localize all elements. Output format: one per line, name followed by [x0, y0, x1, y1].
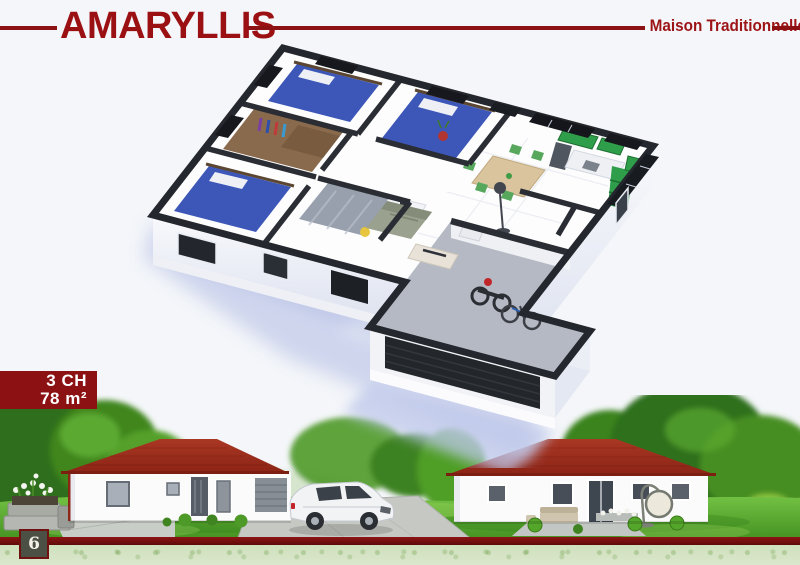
window	[105, 480, 131, 508]
house-base-shadow	[454, 521, 708, 524]
page-number: 6	[28, 534, 40, 554]
header-rule-left	[0, 26, 57, 30]
parked-car	[283, 474, 398, 540]
french-door	[215, 479, 232, 514]
header-rule-right	[772, 26, 800, 30]
header-rule-middle	[248, 26, 645, 30]
car-rear-window	[316, 486, 342, 501]
badge-rooms: 3 CH	[0, 372, 87, 390]
collection-label: Maison Traditionnelle	[650, 16, 769, 36]
footer-rule	[0, 537, 800, 545]
car-body	[290, 482, 394, 521]
badge-area: 78 m²	[0, 390, 87, 408]
floor-plan-3d	[128, 28, 700, 468]
window	[552, 483, 573, 505]
small-window	[167, 483, 179, 495]
window	[671, 483, 690, 500]
car-taillight	[291, 503, 295, 509]
window	[488, 485, 506, 502]
entry-door	[191, 477, 208, 516]
brochure-page: AMARYLLIS Maison Traditionnelle	[0, 0, 800, 565]
spec-badge: 3 CH 78 m²	[0, 371, 97, 409]
page-number-box: 6	[19, 529, 49, 559]
footer-grass-strip	[0, 545, 800, 565]
page-title: AMARYLLIS	[60, 5, 276, 48]
